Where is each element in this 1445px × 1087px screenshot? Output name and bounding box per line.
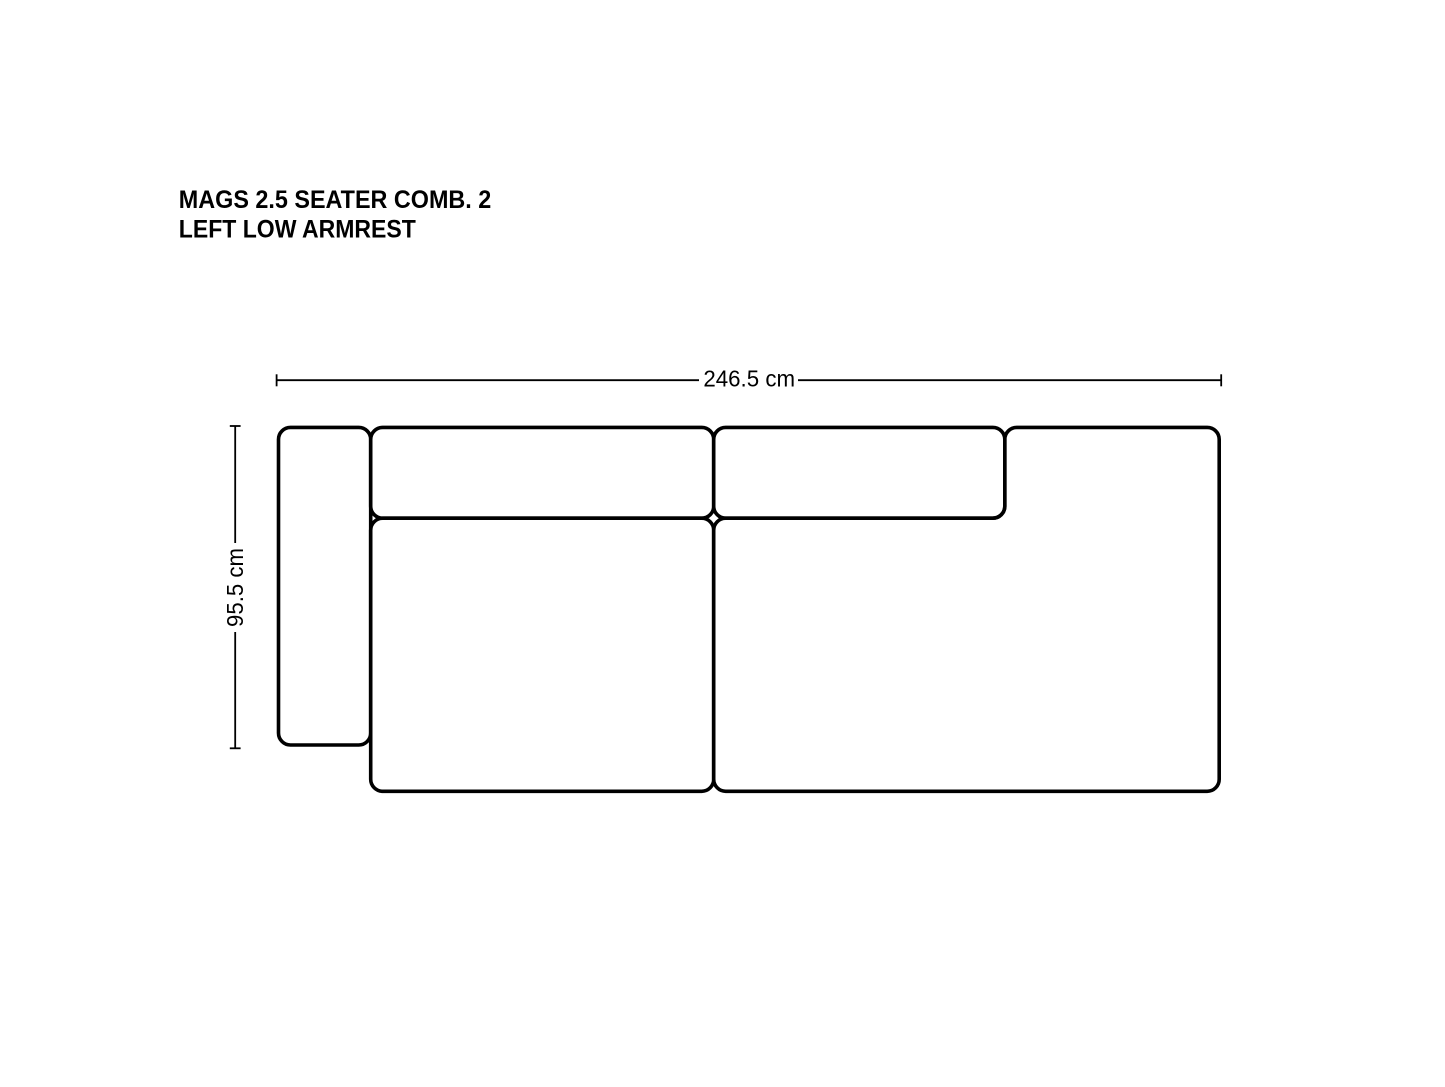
svg-text:MAGS 2.5 SEATER COMB. 2: MAGS 2.5 SEATER COMB. 2 <box>179 186 492 214</box>
svg-text:LEFT LOW ARMREST: LEFT LOW ARMREST <box>179 216 416 244</box>
svg-text:95.5 cm: 95.5 cm <box>222 548 248 627</box>
svg-text:246.5 cm: 246.5 cm <box>703 366 795 392</box>
